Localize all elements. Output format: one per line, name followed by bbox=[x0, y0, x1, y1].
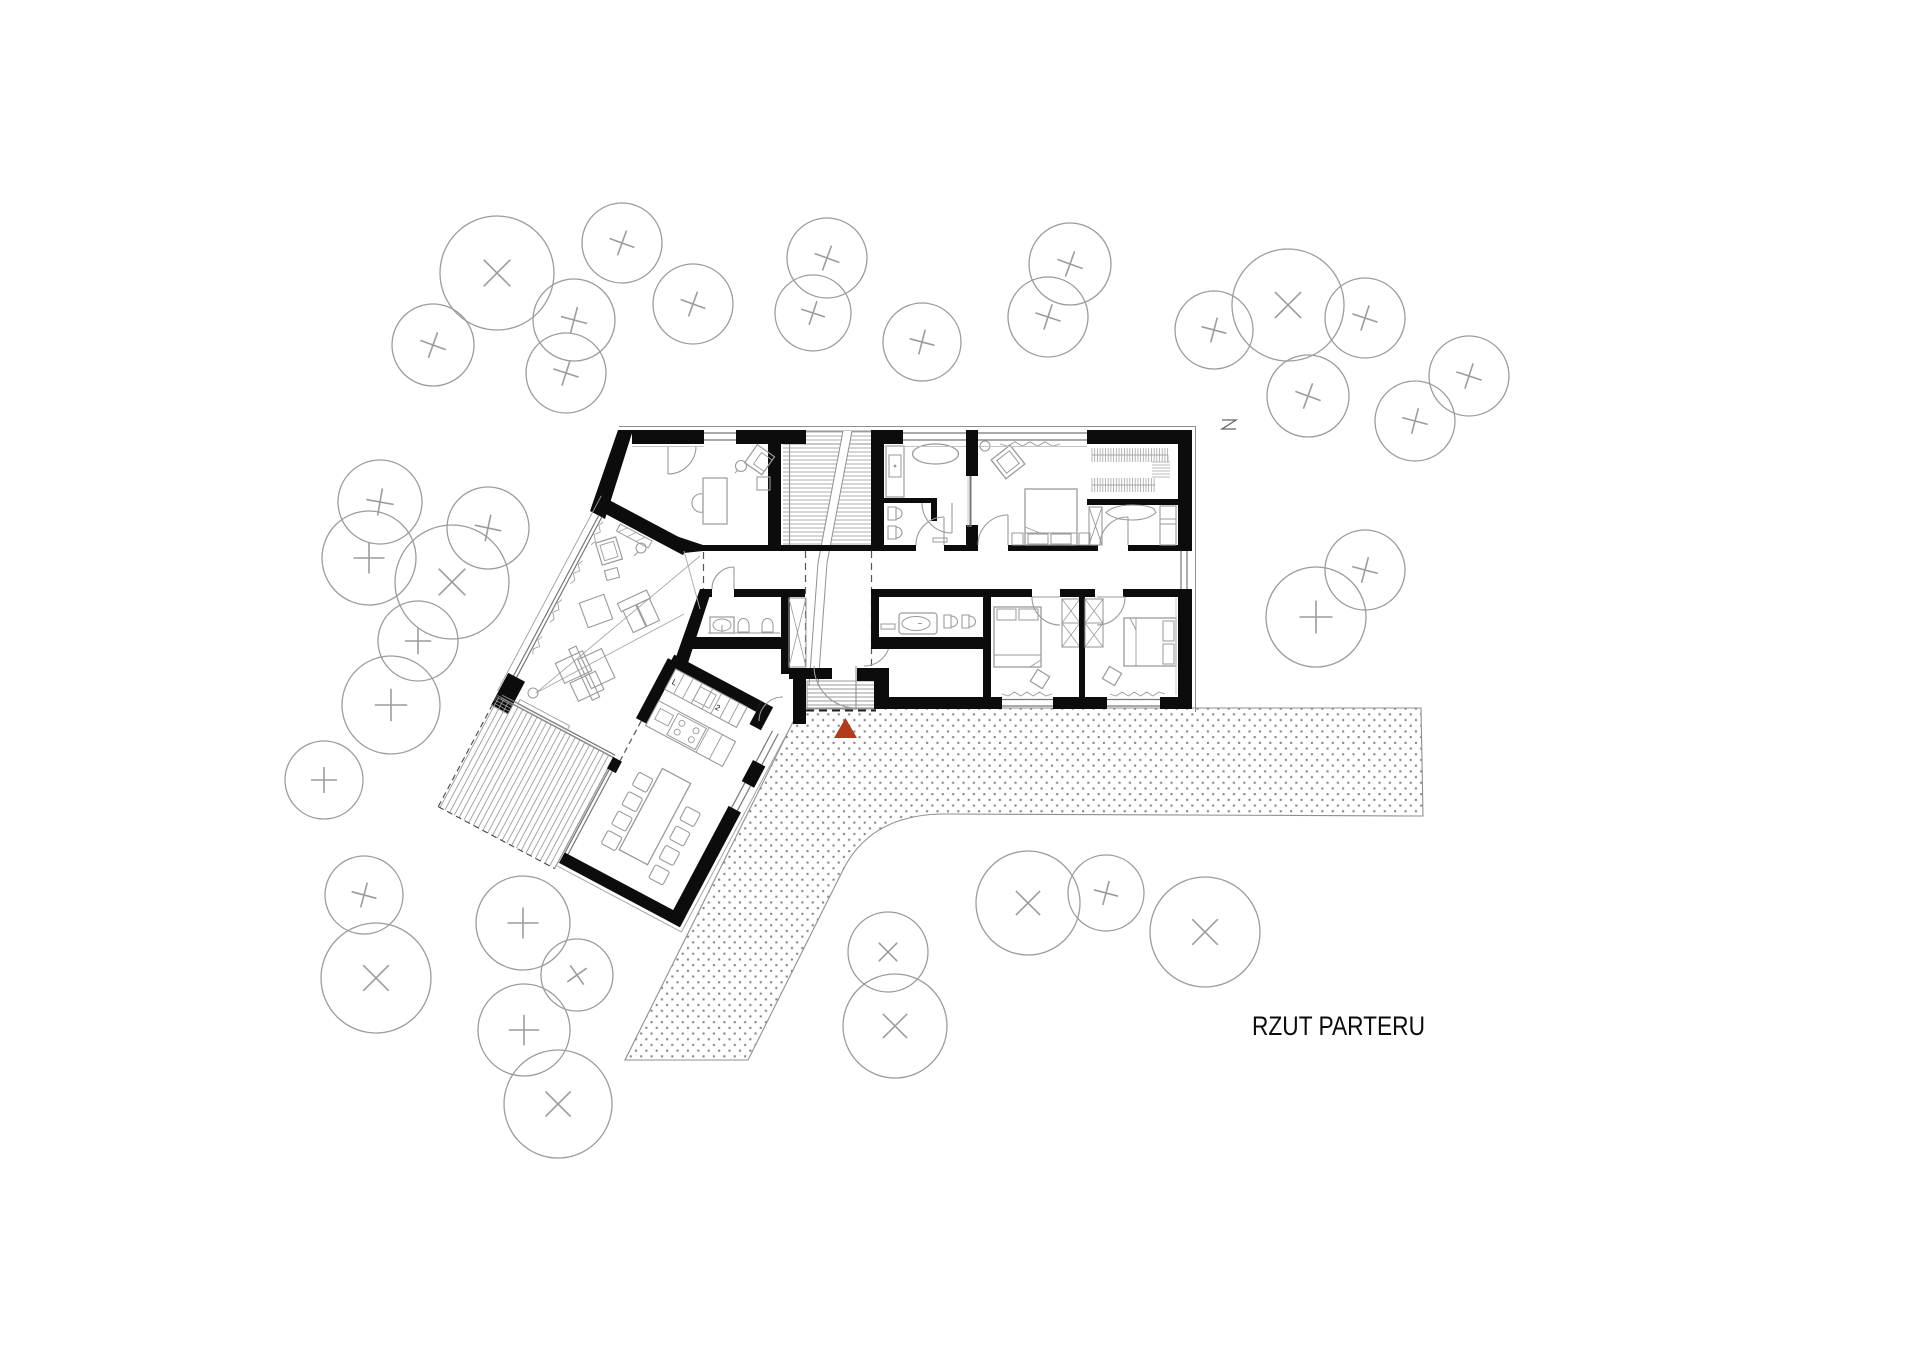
svg-text:RZUT PARTERU: RZUT PARTERU bbox=[1252, 1011, 1425, 1041]
